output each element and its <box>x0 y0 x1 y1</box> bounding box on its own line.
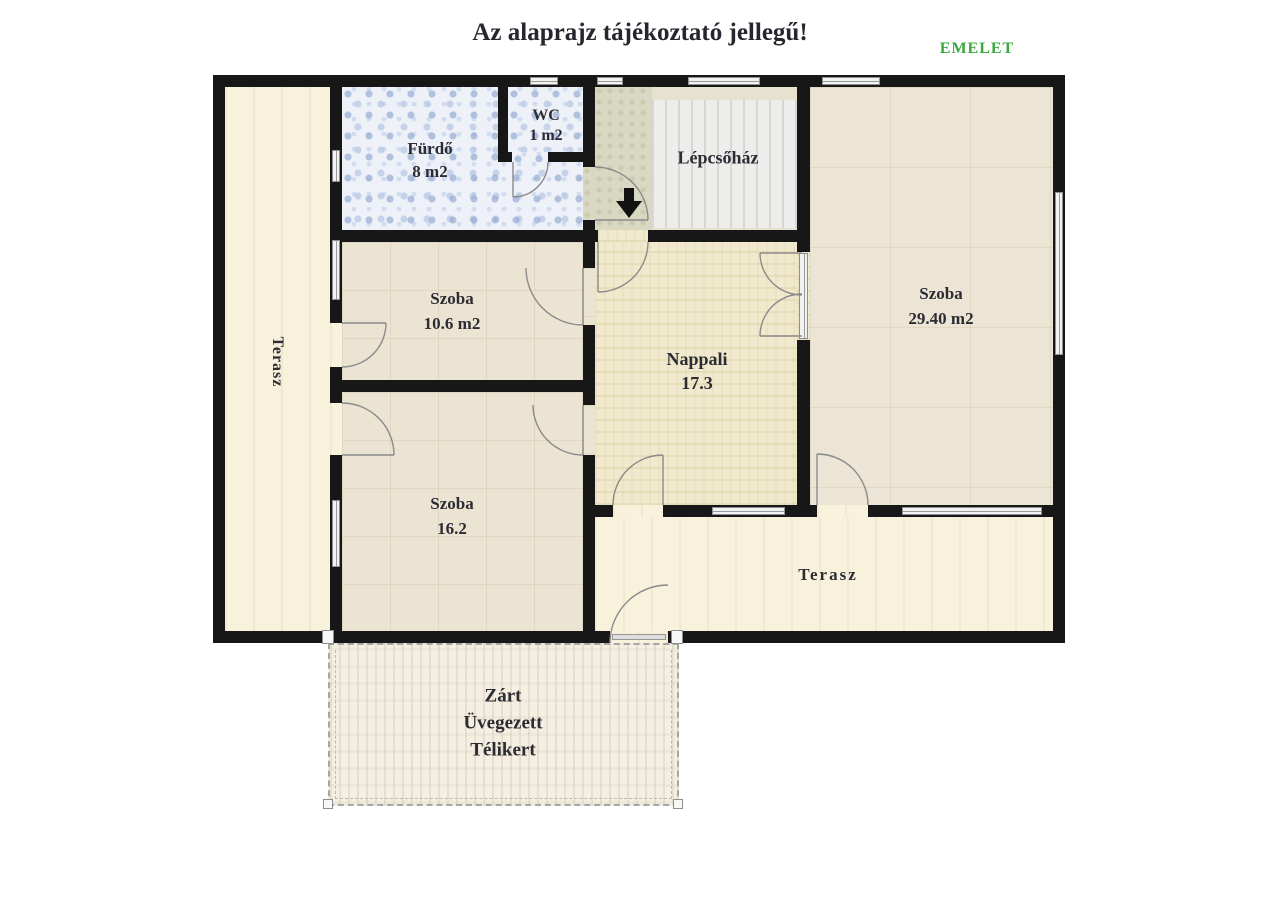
wall <box>498 87 508 152</box>
window <box>332 500 340 567</box>
window <box>597 77 623 85</box>
floor-level-badge: EMELET <box>940 40 1014 58</box>
wall <box>1053 75 1065 643</box>
room-name: Lépcsőház <box>678 148 759 169</box>
room-name: Szoba <box>908 281 973 306</box>
room-label-szoba-small: Szoba 10.6 m2 <box>424 286 481 336</box>
window <box>1055 192 1063 355</box>
double-door-frame <box>799 253 808 339</box>
garden-post <box>323 799 333 809</box>
room-area: 8 m2 <box>407 160 452 183</box>
room-name: WC <box>529 106 562 126</box>
room-name: Szoba <box>430 491 473 516</box>
hallway <box>595 87 652 230</box>
room-name: Télikert <box>463 737 542 764</box>
door-gap-hall-nappali <box>598 230 648 242</box>
door-gap-terasz-szoba-small <box>330 323 342 367</box>
room-area: 10.6 m2 <box>424 311 481 336</box>
window <box>688 77 760 85</box>
door-leaf-telikert <box>612 634 666 640</box>
door-gap-nappali-szoba-mid <box>583 405 595 455</box>
garden-post <box>671 630 683 644</box>
room-label-wc: WC 1 m2 <box>529 106 562 146</box>
door-gap-nappali-szoba-small <box>583 268 595 325</box>
room-label-szoba-large: Szoba 29.40 m2 <box>908 281 973 331</box>
room-label-szoba-mid: Szoba 16.2 <box>430 491 473 541</box>
room-area: 1 m2 <box>529 126 562 146</box>
room-label-terasz-left: Terasz <box>268 337 286 388</box>
room-name: Szoba <box>424 286 481 311</box>
wall <box>213 75 225 643</box>
door-gap-terasz-szoba-mid <box>330 403 342 455</box>
door-gap-szoba-large-terasz <box>817 505 868 517</box>
room-area: 17.3 <box>666 371 727 395</box>
garden-post <box>673 799 683 809</box>
floor-plan-canvas: Az alaprajz tájékoztató jellegű! EMELET <box>0 0 1280 905</box>
window <box>902 507 1042 515</box>
door-gap-wc <box>512 152 548 162</box>
room-name: Fürdő <box>407 137 452 160</box>
door-gap-nappali-terasz <box>613 505 663 517</box>
wall <box>648 230 810 242</box>
room-label-furdo: Fürdő 8 m2 <box>407 137 452 183</box>
room-label-nappali: Nappali 17.3 <box>666 347 727 395</box>
door-gap-furdo-hall <box>583 167 595 220</box>
room-name: Terasz <box>798 565 858 585</box>
room-area: 16.2 <box>430 516 473 541</box>
room-name: Üvegezett <box>463 710 542 737</box>
window <box>332 150 340 182</box>
window <box>332 240 340 300</box>
wall <box>330 380 595 392</box>
wall <box>330 230 598 242</box>
wall <box>213 75 1065 87</box>
window <box>530 77 558 85</box>
room-label-terasz-bottom: Terasz <box>798 565 858 585</box>
garden-post <box>322 630 334 644</box>
window <box>822 77 880 85</box>
plan-disclaimer-title: Az alaprajz tájékoztató jellegű! <box>472 19 807 47</box>
room-area: 29.40 m2 <box>908 306 973 331</box>
window <box>712 507 785 515</box>
room-name: Zárt <box>463 683 542 710</box>
room-label-lepcsohaz: Lépcsőház <box>678 148 759 169</box>
room-name: Nappali <box>666 347 727 371</box>
room-label-telikert: Zárt Üvegezett Télikert <box>463 683 542 764</box>
room-name: Terasz <box>268 337 286 388</box>
